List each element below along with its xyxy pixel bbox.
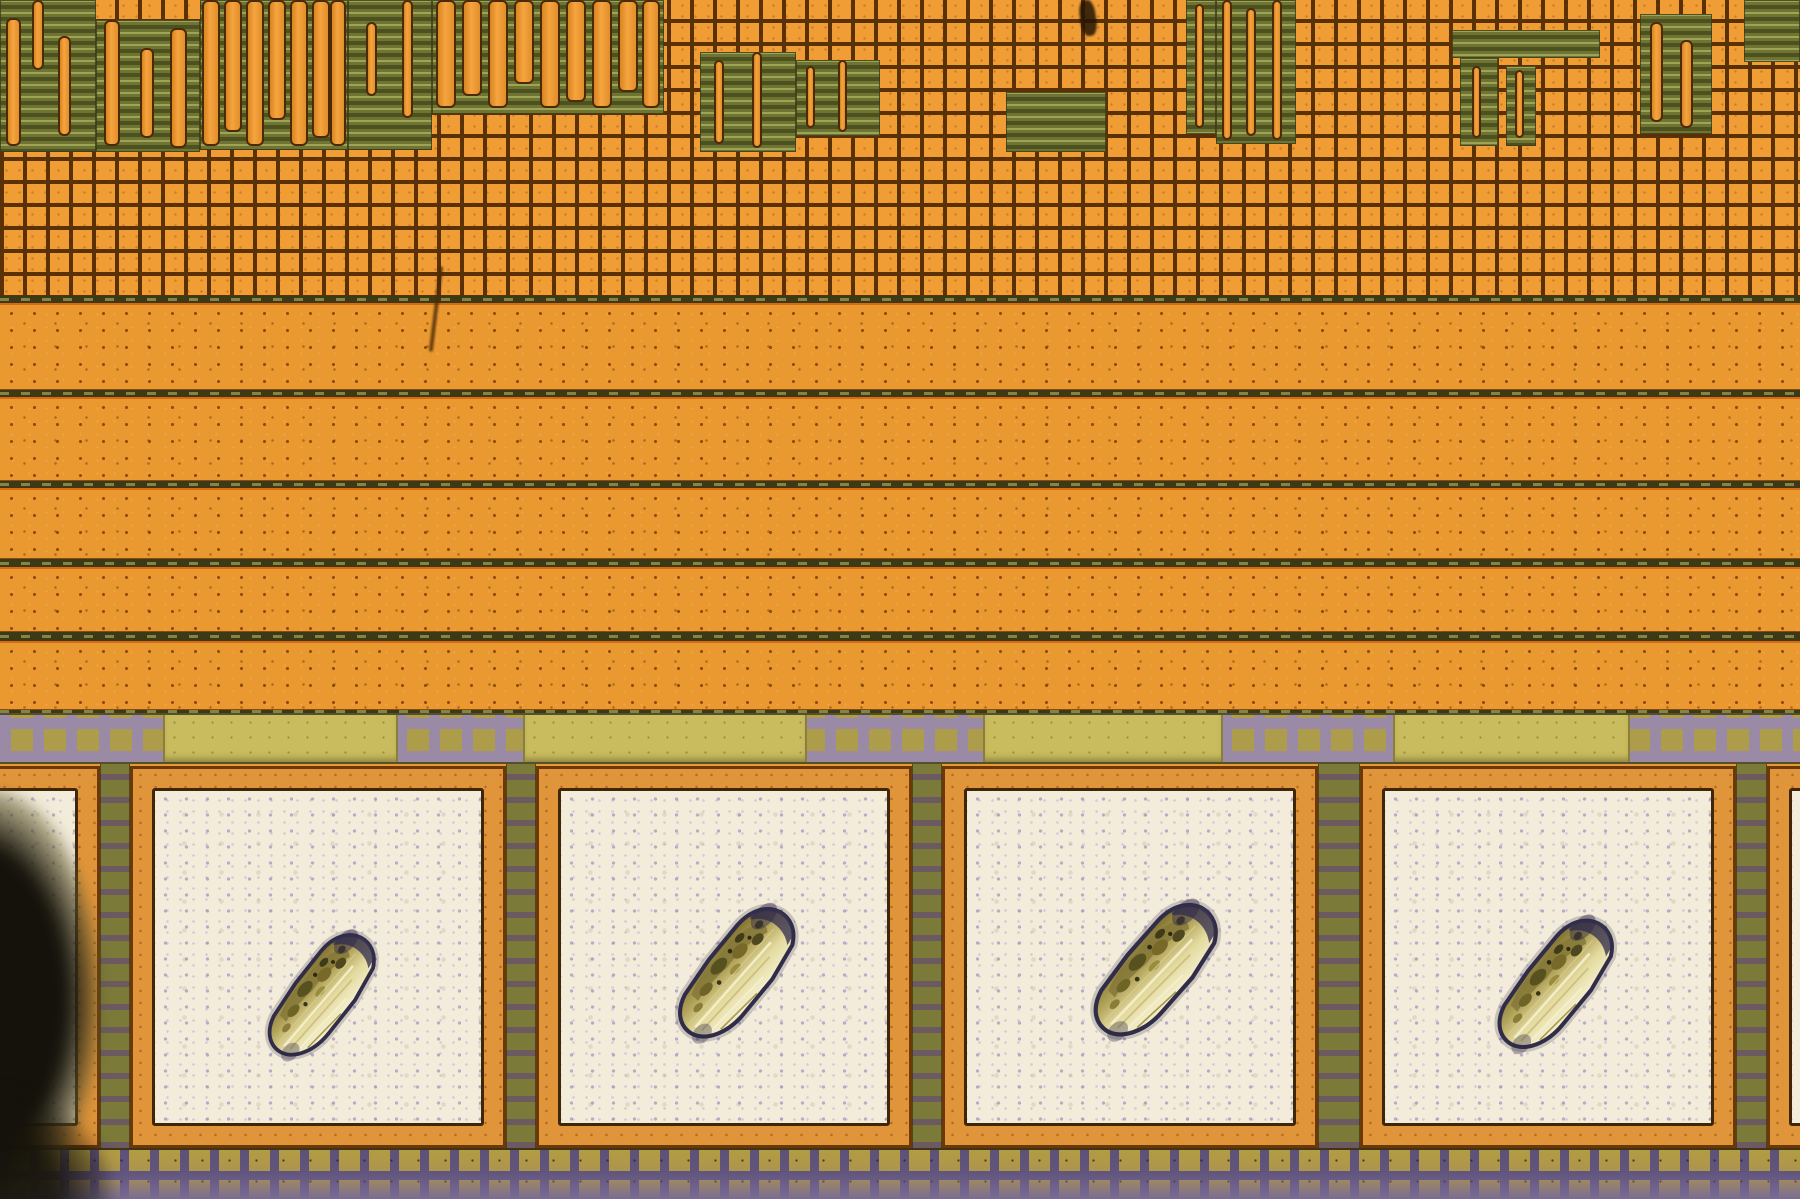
metal-trace-bar: [170, 28, 187, 148]
yellow-segment: [523, 715, 807, 762]
metal-trace-bar: [1472, 66, 1481, 138]
metal-trace-bar: [1195, 4, 1204, 128]
pad-gap-channel: [1736, 764, 1767, 1148]
metal-trace-bar: [330, 0, 346, 146]
crystal-particle: [222, 896, 422, 1096]
pad-gap-channel: [506, 764, 536, 1148]
bus-separator-line: [0, 390, 1800, 397]
metal-trace-bar: [462, 0, 482, 96]
yellow-segment: [163, 715, 398, 762]
metal-bus-band: [0, 488, 1800, 559]
metal-trace-bar: [290, 0, 308, 146]
mesh-strip: [0, 713, 1800, 764]
bus-separator-line: [0, 296, 1800, 303]
metal-trace-bar: [104, 20, 120, 146]
logic-channel-patch: [1460, 58, 1498, 146]
bond-pad: [1767, 766, 1800, 1148]
metal-trace-bar: [6, 18, 21, 146]
logic-channel-patch: [1186, 0, 1216, 134]
metal-trace-bar: [566, 0, 586, 102]
metal-trace-bar: [246, 0, 264, 146]
metal-trace-bar: [1246, 8, 1256, 136]
logic-channel-patch: [1216, 0, 1296, 144]
metal-trace-bar: [714, 60, 724, 144]
crystal-particle: [1056, 871, 1256, 1071]
metal-trace-bar: [1515, 70, 1524, 138]
yellow-segment: [1393, 715, 1630, 762]
metal-trace-bar: [366, 22, 377, 96]
logic-channel-patch: [432, 0, 664, 114]
logic-channel-patch: [1506, 66, 1536, 146]
bus-separator-line: [0, 632, 1800, 641]
metal-trace-bar: [1680, 40, 1693, 128]
metal-trace-bar: [1222, 0, 1232, 140]
metal-trace-bar: [32, 0, 44, 70]
metal-trace-bar: [140, 48, 154, 138]
metal-trace-bar: [838, 60, 847, 132]
metal-trace-bar: [618, 0, 638, 92]
logic-channel-patch: [200, 0, 348, 150]
metal-trace-bar: [58, 36, 71, 136]
logic-channel-patch: [1640, 14, 1712, 134]
pad-gap-channel: [1318, 764, 1360, 1148]
metal-trace-bar: [224, 0, 242, 132]
crystal-particle: [637, 874, 837, 1074]
logic-channel-patch: [700, 52, 796, 152]
metal-trace-bar: [268, 0, 286, 120]
metal-trace-bar: [1272, 0, 1282, 140]
metal-trace-bar: [488, 0, 508, 108]
logic-channel-patch: [1744, 0, 1800, 62]
metal-bus-band: [0, 303, 1800, 390]
bond-pad-opening: [1789, 788, 1800, 1126]
metal-trace-bar: [402, 0, 413, 118]
logic-channel-patch: [96, 20, 200, 152]
logic-channel-patch: [0, 0, 96, 152]
metal-bus-band: [0, 567, 1800, 632]
metal-trace-bar: [1650, 22, 1663, 122]
metal-trace-bar: [312, 0, 330, 138]
logic-channel-patch: [1452, 30, 1600, 58]
metal-bus-band: [0, 641, 1800, 710]
metal-trace-bar: [540, 0, 560, 108]
metal-trace-bar: [642, 0, 660, 108]
metal-trace-bar: [436, 0, 456, 108]
yellow-segment: [983, 715, 1223, 762]
metal-trace-bar: [202, 0, 220, 146]
metal-trace-bar: [592, 0, 612, 108]
logic-channel-patch: [348, 0, 432, 150]
metal-bus-band: [0, 397, 1800, 481]
logic-channel-patch: [796, 60, 880, 136]
pad-gap-channel: [912, 764, 942, 1148]
bus-separator-line: [0, 481, 1800, 488]
bottom-mesh-band: [0, 1148, 1800, 1199]
metal-trace-bar: [806, 66, 815, 128]
crystal-particle: [1456, 885, 1656, 1085]
metal-trace-bar: [752, 52, 762, 148]
bus-separator-line: [0, 559, 1800, 567]
logic-channel-patch: [1006, 92, 1106, 152]
chip-die-micrograph: [0, 0, 1800, 1199]
metal-trace-bar: [514, 0, 534, 84]
pad-gap-channel: [100, 764, 130, 1148]
